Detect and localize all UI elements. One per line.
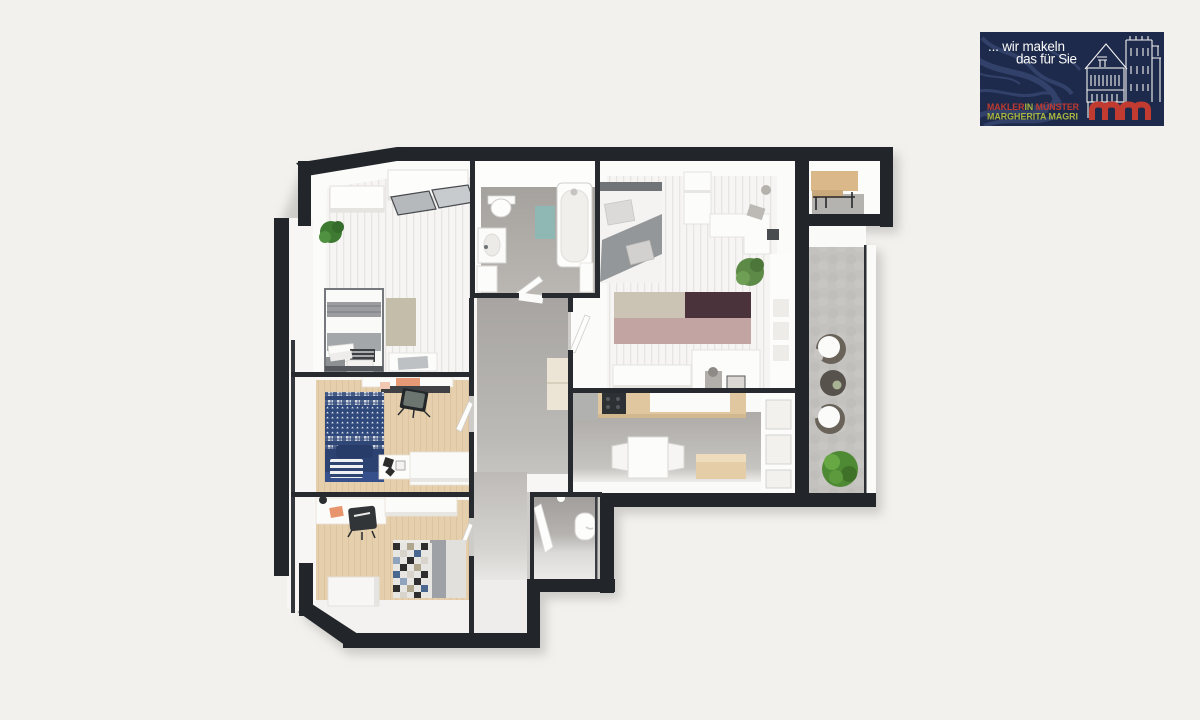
- svg-text:MAKLERIN MÜNSTER: MAKLERIN MÜNSTER: [987, 102, 1079, 112]
- svg-text:das für Sie: das für Sie: [1016, 52, 1077, 67]
- svg-text:MARGHERITA MAGRI: MARGHERITA MAGRI: [987, 112, 1078, 122]
